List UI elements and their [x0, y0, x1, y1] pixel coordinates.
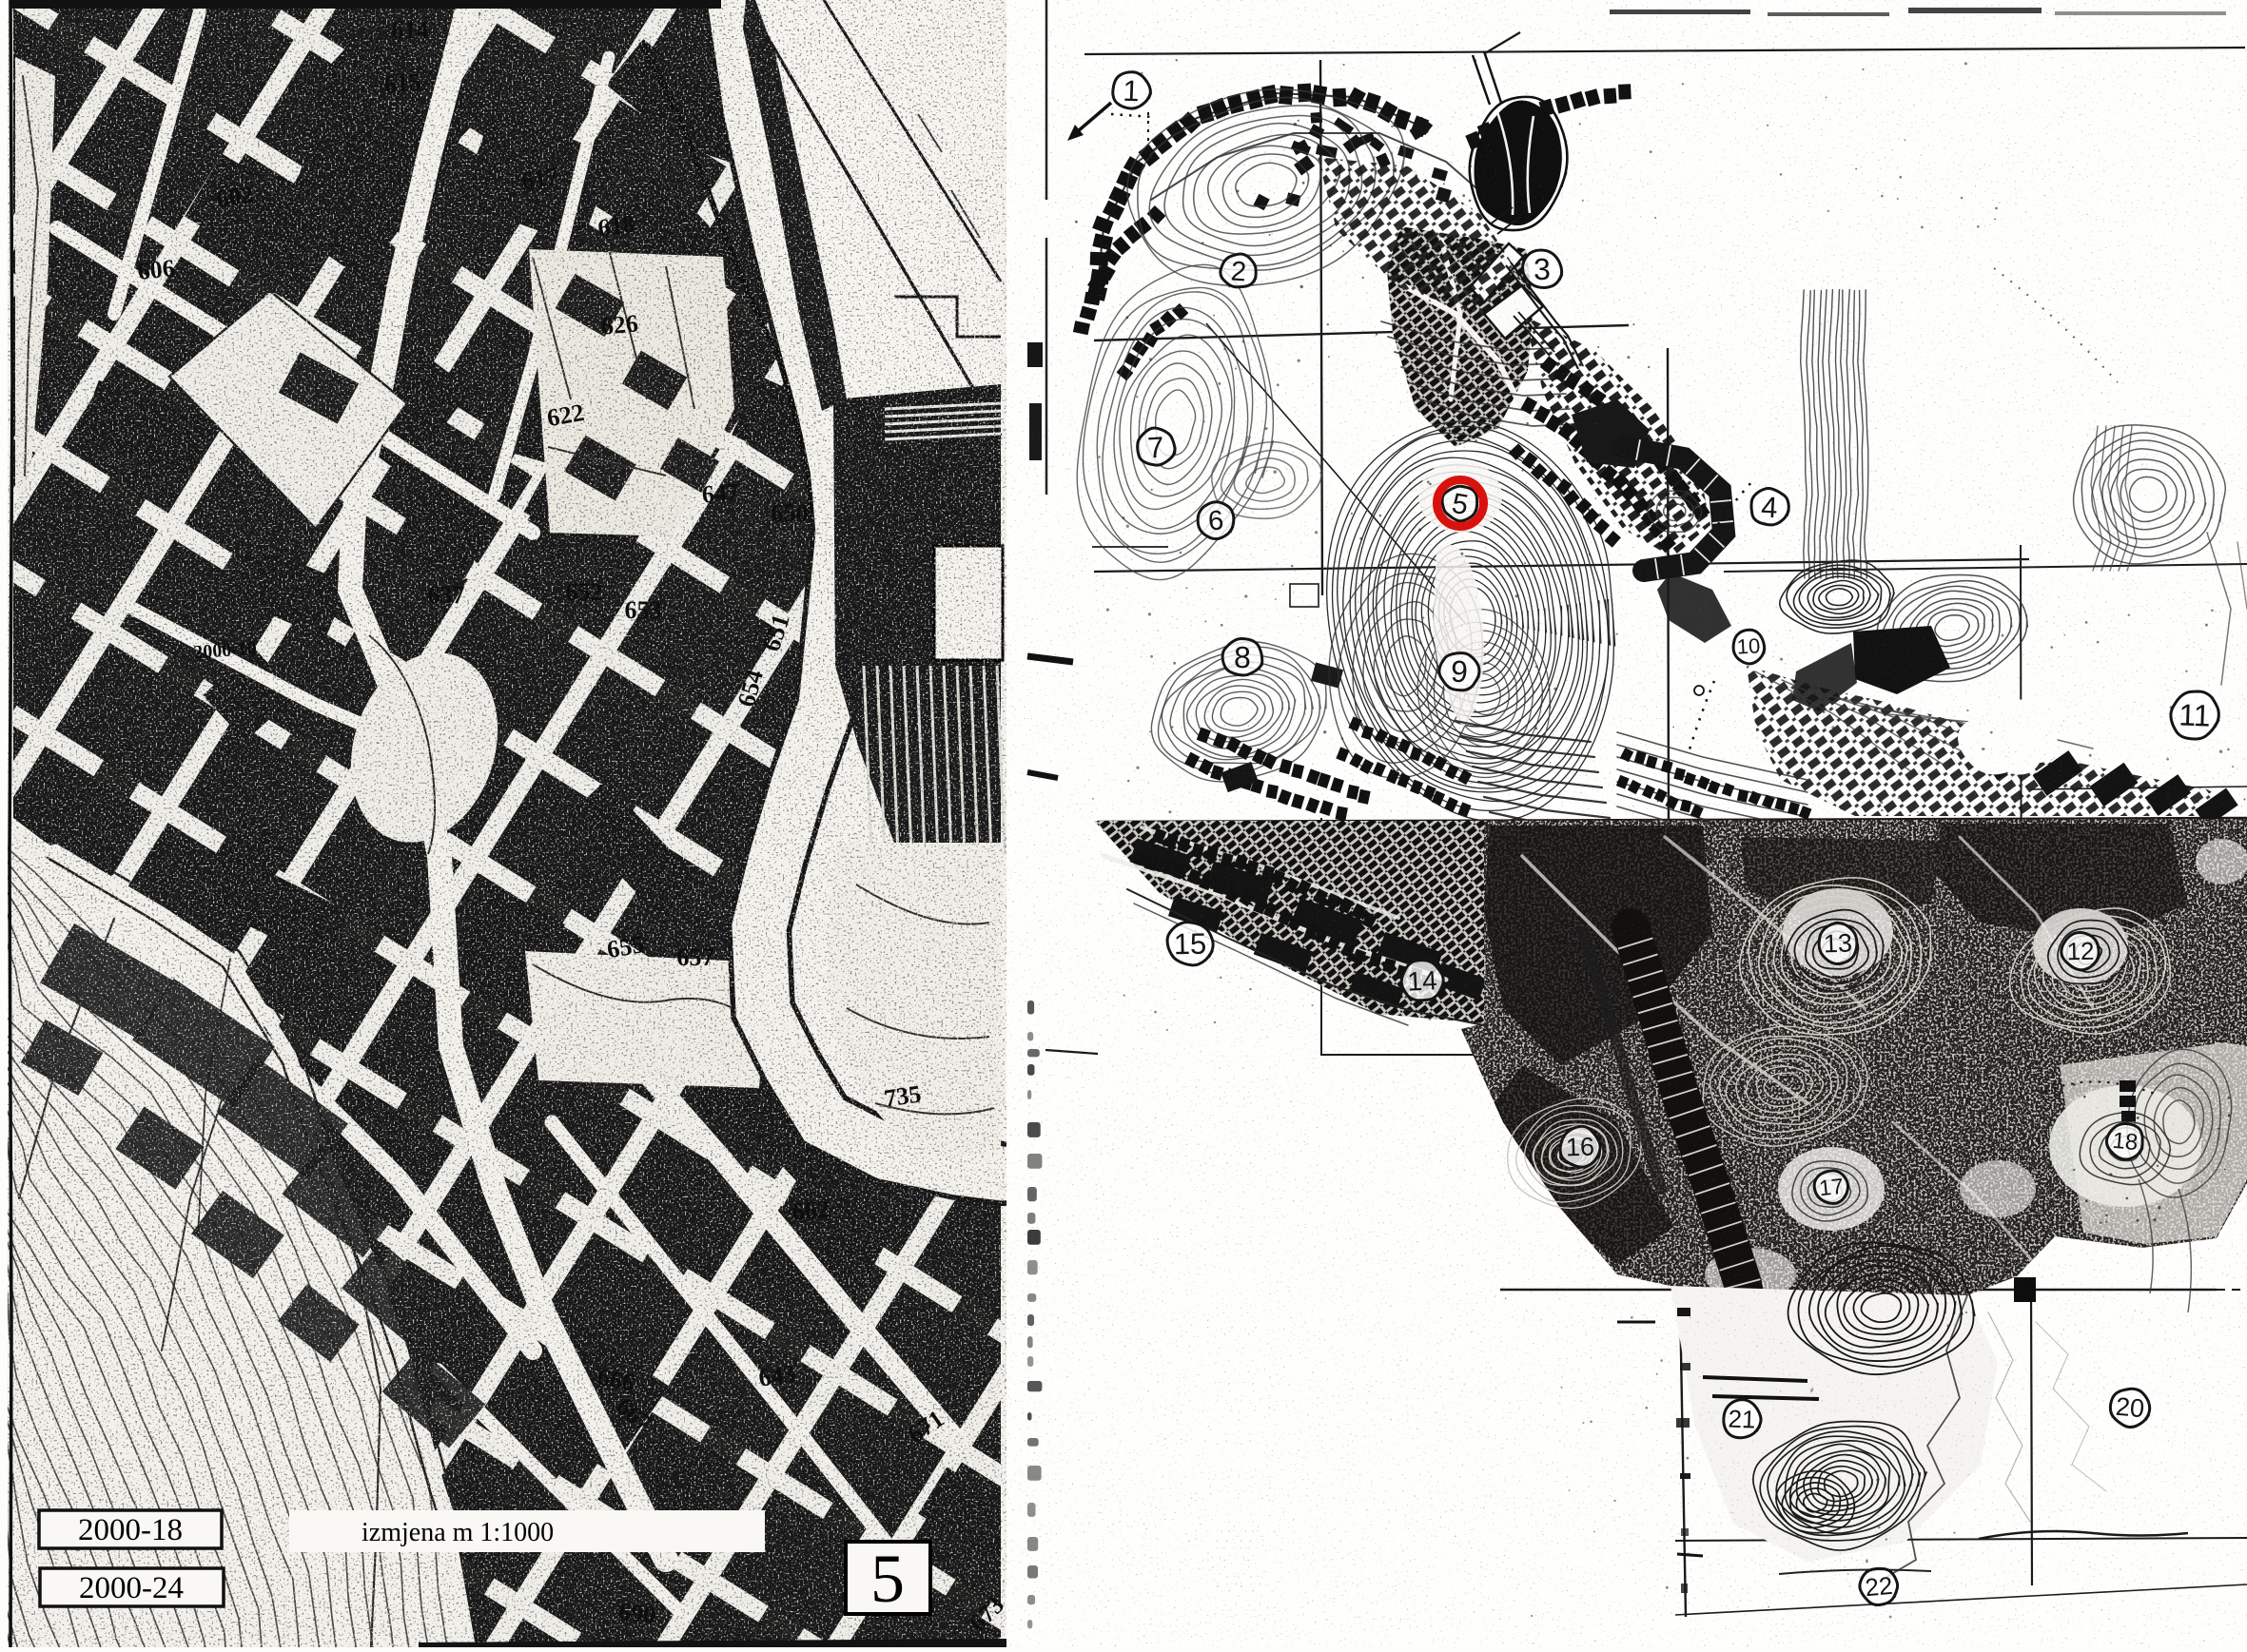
svg-text:615: 615 — [383, 68, 422, 98]
svg-text:626: 626 — [600, 309, 639, 340]
svg-text:637: 637 — [428, 581, 465, 609]
svg-text:618: 618 — [596, 210, 636, 243]
svg-text:5: 5 — [870, 1541, 905, 1617]
svg-text:650: 650 — [772, 499, 809, 527]
svg-text:606: 606 — [136, 254, 176, 285]
svg-text:735: 735 — [882, 1080, 923, 1113]
svg-text:614: 614 — [392, 16, 429, 44]
svg-text:662: 662 — [791, 1195, 830, 1225]
svg-text:602: 602 — [214, 181, 255, 213]
svg-text:2000-10: 2000-10 — [193, 638, 258, 664]
svg-text:izmjena m 1:1000: izmjena m 1:1000 — [361, 1518, 554, 1547]
svg-text:653: 653 — [625, 596, 662, 624]
svg-text:647: 647 — [701, 477, 740, 508]
svg-text:2000-24: 2000-24 — [79, 1571, 184, 1605]
svg-text:652: 652 — [566, 578, 603, 606]
svg-text:657: 657 — [677, 943, 714, 971]
svg-text:690: 690 — [617, 1598, 656, 1628]
svg-text:2000-18: 2000-18 — [78, 1513, 183, 1547]
svg-text:643: 643 — [756, 1360, 797, 1392]
